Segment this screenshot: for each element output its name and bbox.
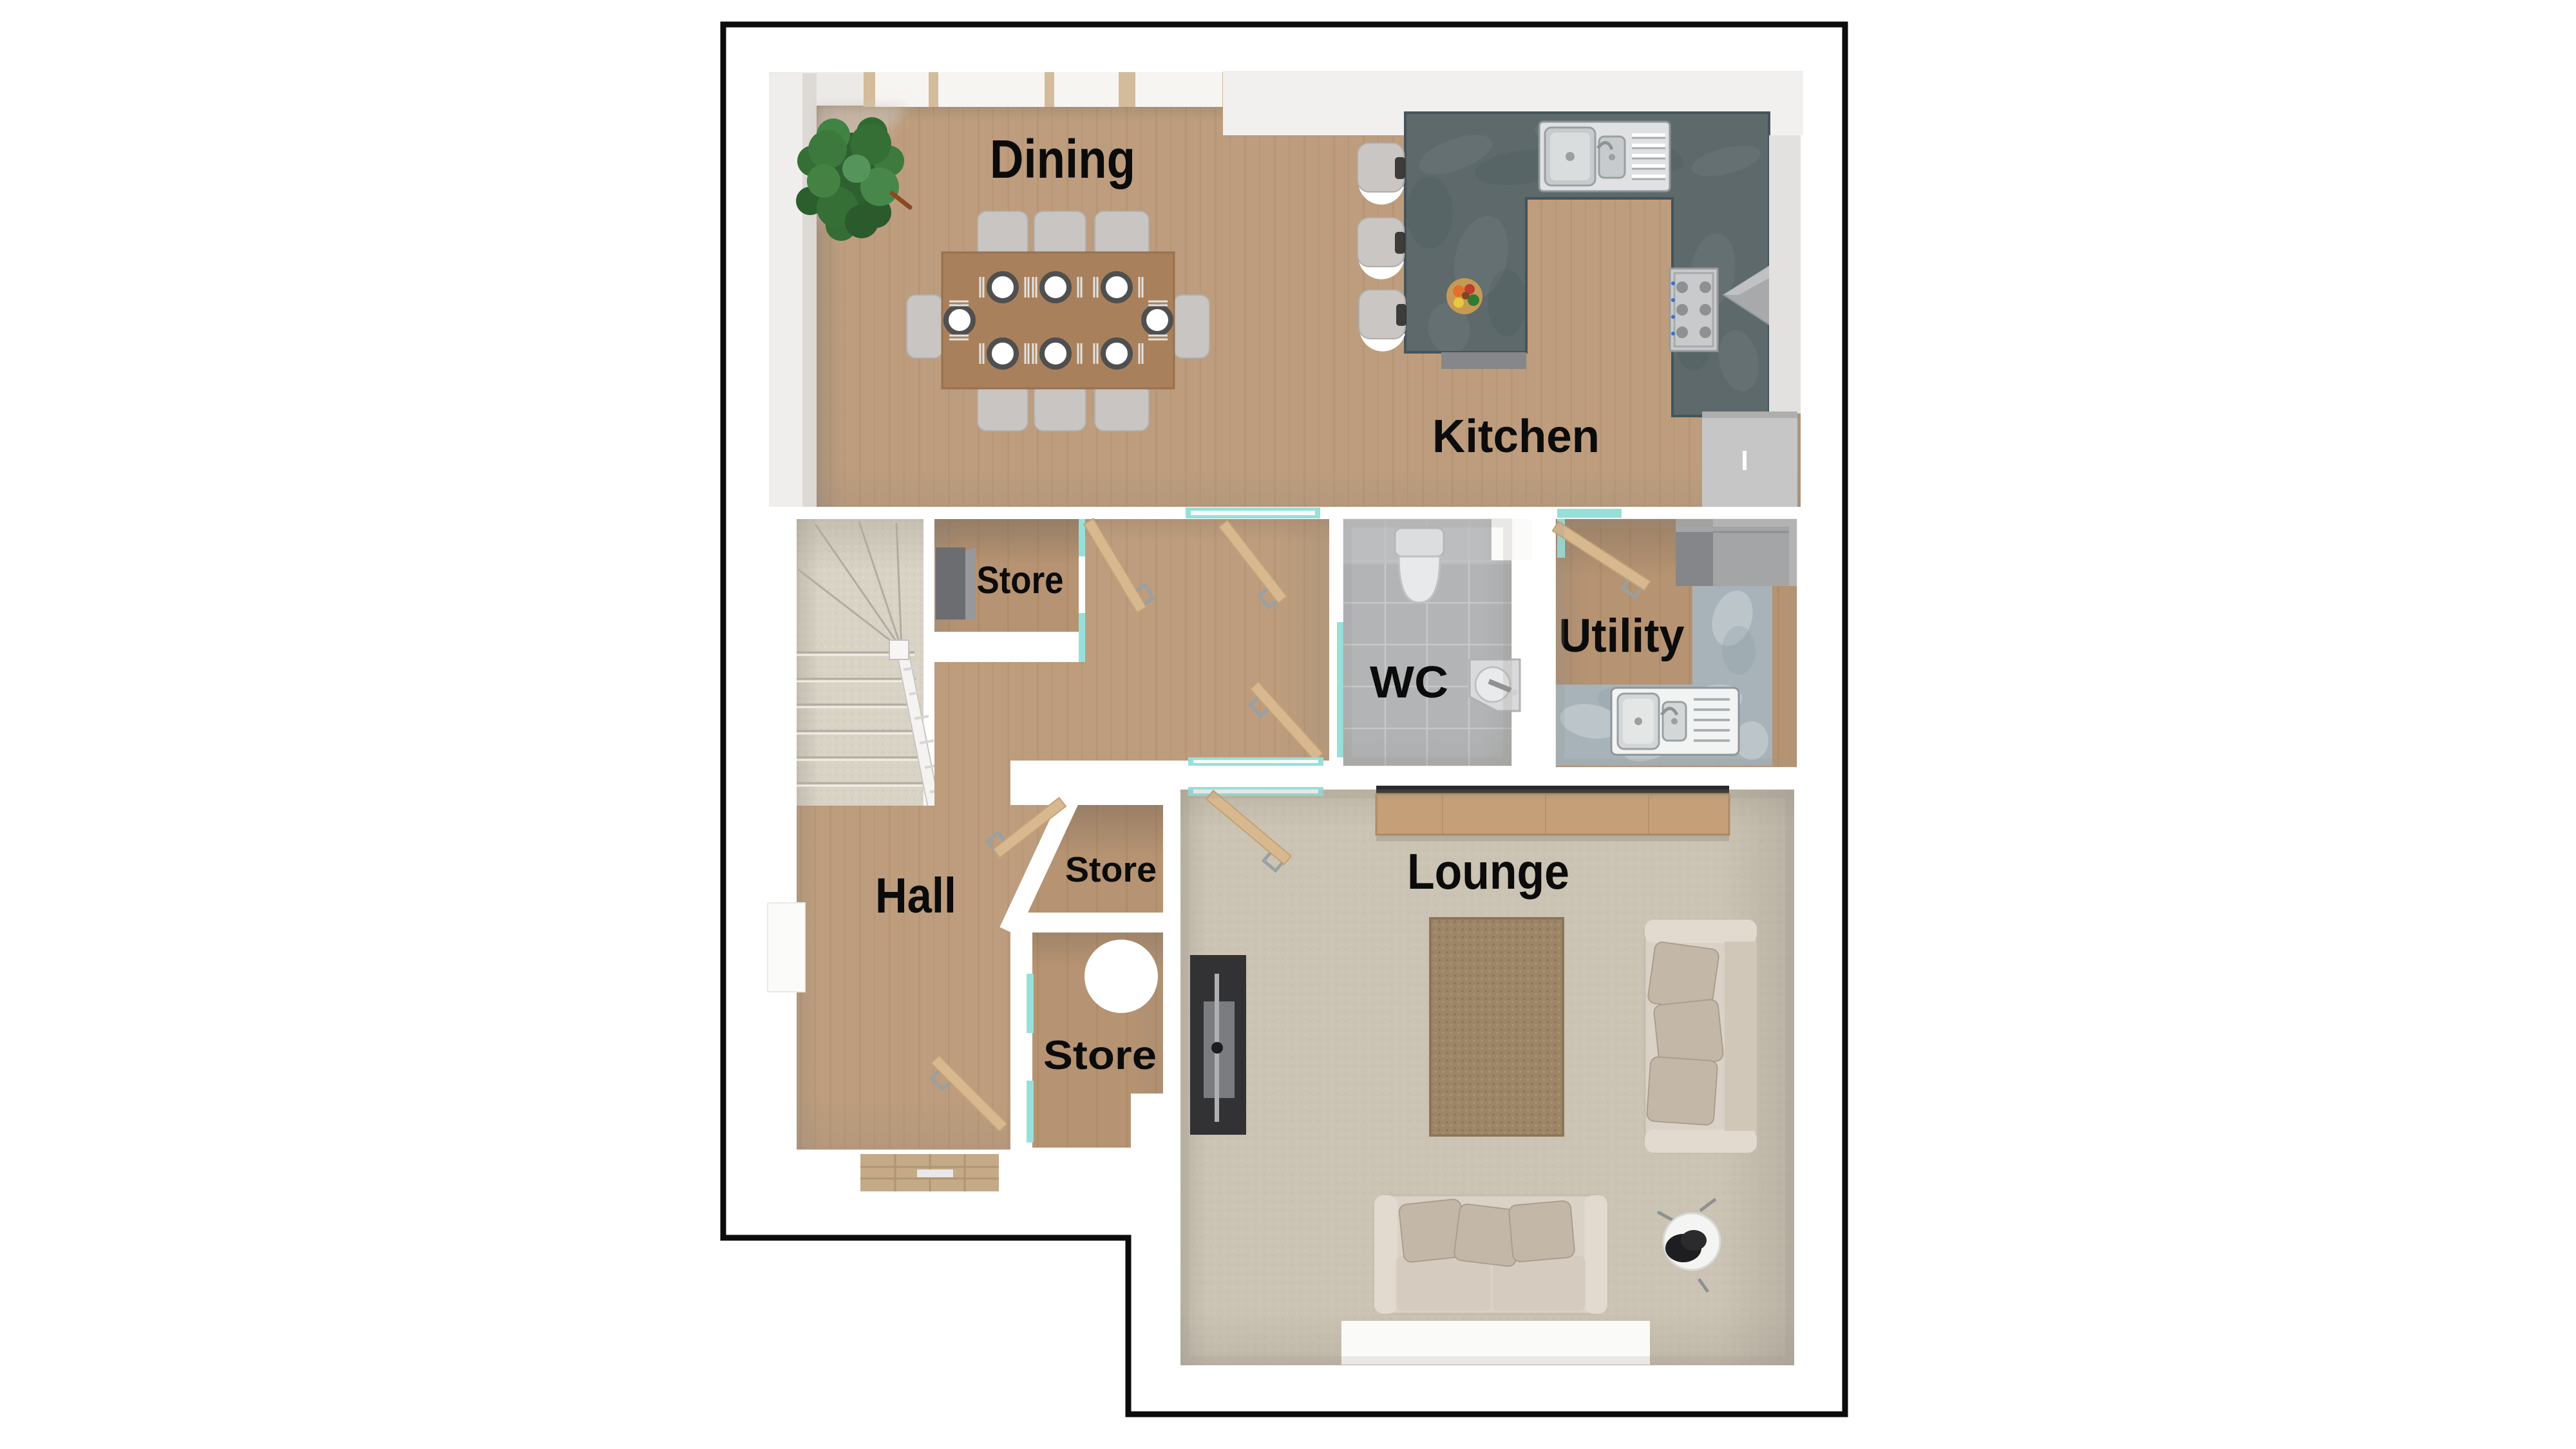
svg-text:Store: Store xyxy=(977,559,1064,601)
svg-text:Lounge: Lounge xyxy=(1407,843,1569,900)
svg-text:Kitchen: Kitchen xyxy=(1432,411,1600,462)
svg-text:WC: WC xyxy=(1370,657,1448,707)
svg-text:Store: Store xyxy=(1065,849,1157,889)
svg-text:Hall: Hall xyxy=(875,868,956,923)
svg-text:Dining: Dining xyxy=(990,129,1135,189)
svg-text:Utility: Utility xyxy=(1559,610,1685,662)
svg-text:Store: Store xyxy=(1043,1033,1157,1078)
